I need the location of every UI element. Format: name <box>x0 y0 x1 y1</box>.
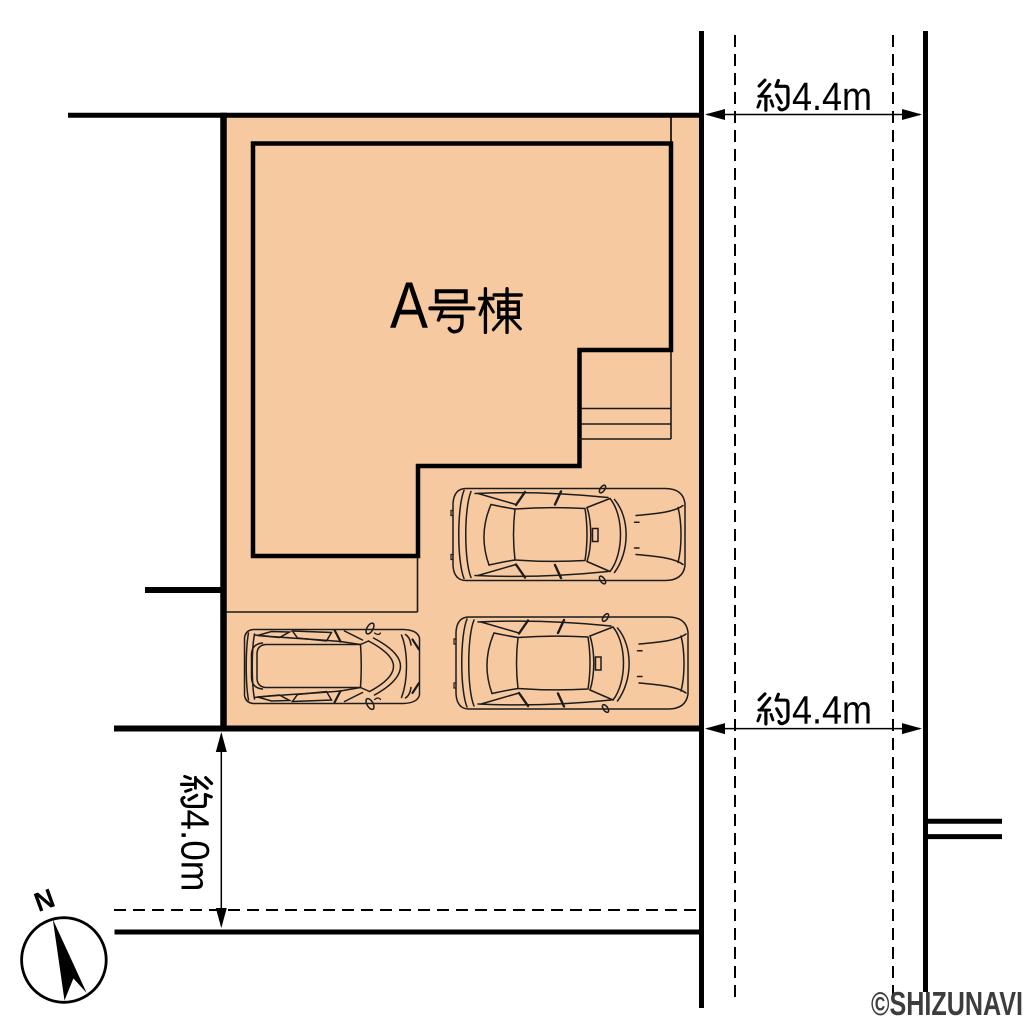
svg-text:A: A <box>390 268 428 342</box>
svg-text:©SHIZUNAVI: ©SHIZUNAVI <box>871 985 1023 1022</box>
svg-text:4.0m: 4.0m <box>173 810 217 892</box>
svg-text:4.4m: 4.4m <box>792 689 872 733</box>
svg-text:4.4m: 4.4m <box>792 75 872 119</box>
